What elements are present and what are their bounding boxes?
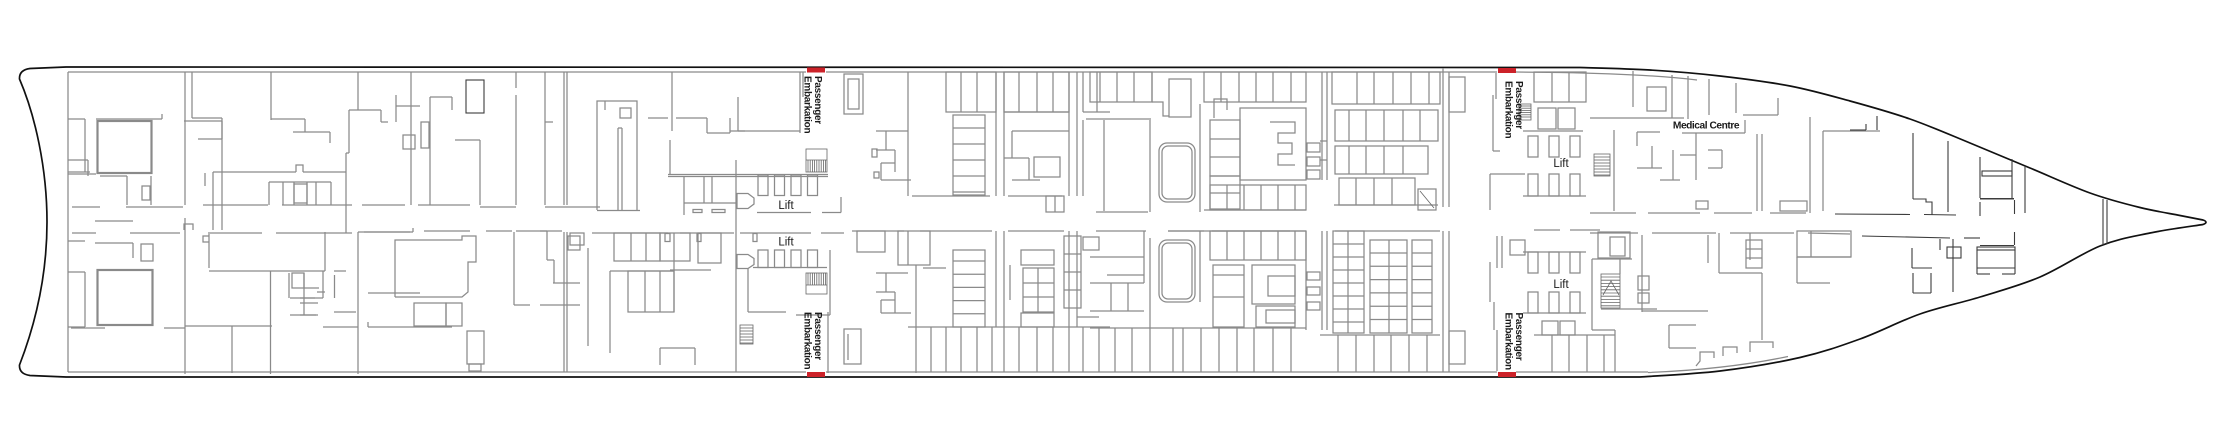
svg-text:Lift: Lift xyxy=(1553,158,1569,170)
svg-text:PassengerEmbarkation: PassengerEmbarkation xyxy=(802,312,824,369)
svg-text:Lift: Lift xyxy=(1553,279,1569,291)
svg-text:Medical Centre: Medical Centre xyxy=(1673,121,1740,132)
svg-text:PassengerEmbarkation: PassengerEmbarkation xyxy=(1503,81,1525,138)
svg-text:PassengerEmbarkation: PassengerEmbarkation xyxy=(1503,313,1525,370)
svg-text:Lift: Lift xyxy=(778,237,794,249)
svg-text:PassengerEmbarkation: PassengerEmbarkation xyxy=(802,76,824,133)
svg-text:Lift: Lift xyxy=(778,200,794,212)
